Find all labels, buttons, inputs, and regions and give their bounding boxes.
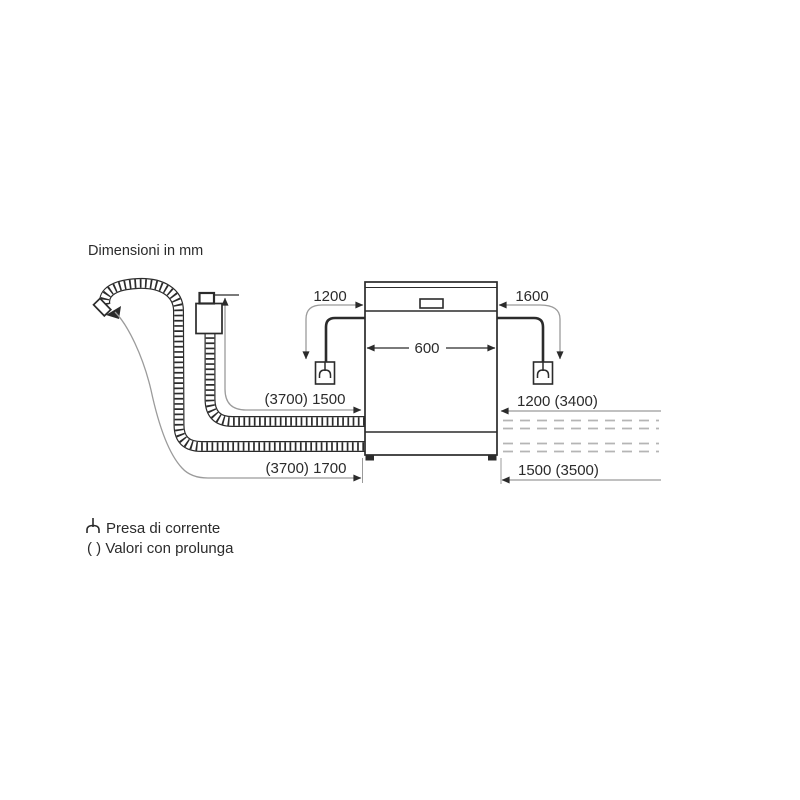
installation-diagram-page: Dimensioni in mm 1200 1600 600 (3700) 15…	[0, 0, 800, 800]
cord-right-dimension-label: 1600	[515, 288, 548, 305]
cord-right-dimension-arc	[499, 305, 560, 359]
supply-hose-dimension-label: (3700) 1500	[265, 391, 346, 408]
diagram-title: Dimensioni in mm	[88, 243, 203, 259]
right-upper-dimension-label: 1200 (3400)	[517, 393, 598, 410]
cord-left-dimension-arc	[306, 305, 363, 359]
legend: Presa di corrente ( ) Valori con prolung…	[87, 518, 234, 557]
door-handle	[420, 299, 443, 308]
hose-extension-dashed-lines	[503, 421, 659, 452]
left-foot	[366, 455, 375, 461]
aquastop-valve	[196, 304, 222, 334]
power-socket-legend-icon	[87, 518, 99, 533]
power-socket-icon-right	[534, 362, 553, 384]
width-dimension-label: 600	[414, 340, 439, 357]
legend-socket-label: Presa di corrente	[106, 520, 220, 537]
drain-hose-dimension-label: (3700) 1700	[266, 460, 347, 477]
power-cable-left	[326, 318, 365, 362]
legend-extension-label: ( ) Valori con prolunga	[87, 540, 234, 557]
dishwasher	[365, 282, 497, 461]
dishwasher-installation-diagram: Dimensioni in mm 1200 1600 600 (3700) 15…	[0, 0, 800, 800]
right-foot	[488, 455, 497, 461]
right-lower-dimension-label: 1500 (3500)	[518, 462, 599, 479]
power-socket-icon-left	[316, 362, 335, 384]
power-cable-right	[497, 318, 543, 362]
cord-left-dimension-label: 1200	[313, 288, 346, 305]
aquastop-cap	[200, 293, 215, 304]
